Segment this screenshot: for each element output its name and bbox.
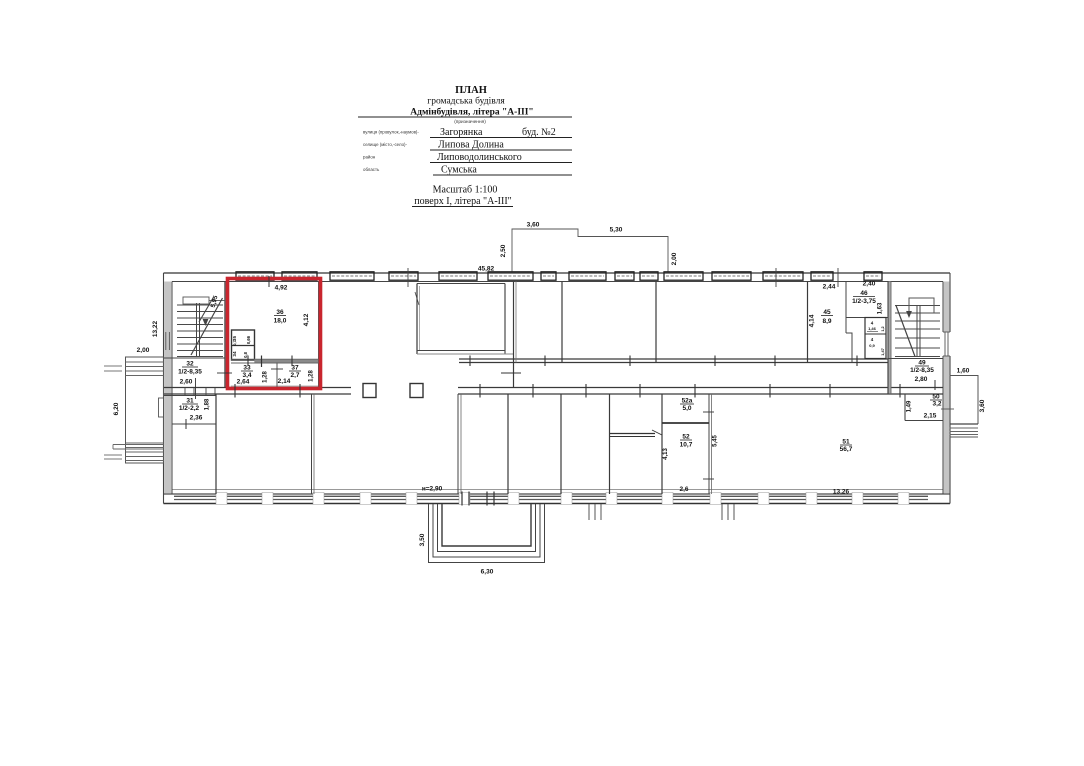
svg-text:5,30: 5,30 <box>610 227 623 234</box>
svg-text:вулиця (провулок,-наумов)-: вулиця (провулок,-наумов)- <box>363 130 419 135</box>
svg-text:Загорянка: Загорянка <box>440 127 483 138</box>
svg-text:50: 50 <box>932 394 940 401</box>
svg-text:4,12: 4,12 <box>303 313 310 326</box>
svg-text:4,13: 4,13 <box>663 448 669 460</box>
svg-text:8,9: 8,9 <box>822 318 831 325</box>
svg-text:56,7: 56,7 <box>840 446 853 453</box>
svg-text:1/2-3,75: 1/2-3,75 <box>852 298 876 305</box>
svg-text:3,50: 3,50 <box>419 533 426 546</box>
svg-text:громадська будівля: громадська будівля <box>427 96 505 107</box>
svg-text:35: 35 <box>232 336 237 342</box>
svg-text:5,45: 5,45 <box>713 435 719 447</box>
svg-text:51: 51 <box>842 439 850 446</box>
svg-text:2,15: 2,15 <box>924 413 937 420</box>
svg-text:0,8: 0,8 <box>243 351 248 357</box>
svg-text:2,00: 2,00 <box>671 252 678 265</box>
svg-text:34: 34 <box>232 351 237 357</box>
svg-text:31: 31 <box>186 398 194 405</box>
svg-text:поверх І, літера "А-ІІІ": поверх І, літера "А-ІІІ" <box>414 196 512 207</box>
svg-text:1,63: 1,63 <box>878 302 884 314</box>
svg-text:0,9: 0,9 <box>869 343 875 348</box>
svg-text:3,60: 3,60 <box>979 399 986 412</box>
svg-text:3,60: 3,60 <box>527 222 540 229</box>
svg-text:Сумська: Сумська <box>441 165 477 176</box>
svg-text:0,7: 0,7 <box>233 340 237 345</box>
svg-text:Липова Долина: Липова Долина <box>438 140 504 151</box>
svg-text:46: 46 <box>860 290 868 297</box>
svg-text:2,60: 2,60 <box>180 379 193 386</box>
svg-text:1,28: 1,28 <box>263 371 269 383</box>
svg-text:1,46: 1,46 <box>868 326 877 331</box>
svg-text:2,40: 2,40 <box>863 281 876 288</box>
svg-text:1,2: 1,2 <box>881 326 885 331</box>
svg-text:2,6: 2,6 <box>679 486 688 493</box>
svg-text:буд. №2: буд. №2 <box>522 127 556 138</box>
svg-text:32: 32 <box>186 361 194 368</box>
svg-text:область: область <box>363 167 380 172</box>
svg-text:1,47: 1,47 <box>881 348 885 355</box>
svg-text:36: 36 <box>276 309 284 316</box>
svg-text:52: 52 <box>682 434 690 441</box>
svg-text:4,14: 4,14 <box>809 314 816 327</box>
svg-text:45: 45 <box>823 309 831 316</box>
svg-text:н=2,90: н=2,90 <box>422 486 443 493</box>
svg-text:1,60: 1,60 <box>957 368 970 375</box>
svg-text:18,0: 18,0 <box>274 318 287 325</box>
svg-text:2,7: 2,7 <box>290 372 299 379</box>
svg-text:52а: 52а <box>682 398 693 405</box>
svg-text:13,26: 13,26 <box>833 489 850 496</box>
svg-text:33: 33 <box>243 365 251 372</box>
svg-text:район: район <box>363 155 376 160</box>
svg-text:2,64: 2,64 <box>237 379 250 386</box>
svg-text:3,2: 3,2 <box>932 401 941 408</box>
svg-text:2,44: 2,44 <box>823 284 836 291</box>
svg-text:2,14: 2,14 <box>278 378 291 385</box>
svg-text:Адмінбудівля, літера "А-ІІІ": Адмінбудівля, літера "А-ІІІ" <box>410 107 533 118</box>
svg-text:1,49: 1,49 <box>907 400 913 412</box>
svg-text:1,88: 1,88 <box>205 398 211 410</box>
svg-text:1/2-2,2: 1/2-2,2 <box>179 405 200 412</box>
svg-text:Масштаб 1:100: Масштаб 1:100 <box>433 185 498 196</box>
svg-text:ПЛАН: ПЛАН <box>455 85 487 96</box>
svg-text:13,22: 13,22 <box>152 320 159 337</box>
svg-text:6,20: 6,20 <box>113 402 120 415</box>
svg-text:Липоводолинського: Липоводолинського <box>437 152 522 163</box>
svg-text:6,30: 6,30 <box>481 569 494 576</box>
svg-text:0,66: 0,66 <box>246 335 251 344</box>
svg-text:4: 4 <box>871 321 874 326</box>
svg-text:1/2-8,35: 1/2-8,35 <box>910 367 934 374</box>
svg-text:2,80: 2,80 <box>915 376 928 383</box>
svg-text:1/2-8,35: 1/2-8,35 <box>178 369 202 376</box>
svg-text:5,0: 5,0 <box>682 405 691 412</box>
svg-text:2,36: 2,36 <box>190 415 203 422</box>
svg-text:49: 49 <box>918 360 926 367</box>
svg-text:2,50: 2,50 <box>500 244 507 257</box>
svg-text:2,00: 2,00 <box>137 347 150 354</box>
svg-text:селище (місто,-село)-: селище (місто,-село)- <box>363 142 407 147</box>
svg-text:10,7: 10,7 <box>680 442 693 449</box>
svg-text:4,92: 4,92 <box>275 285 288 292</box>
svg-text:(призначення): (призначення) <box>454 119 486 125</box>
svg-text:4: 4 <box>871 337 874 342</box>
svg-text:1,28: 1,28 <box>309 370 315 382</box>
